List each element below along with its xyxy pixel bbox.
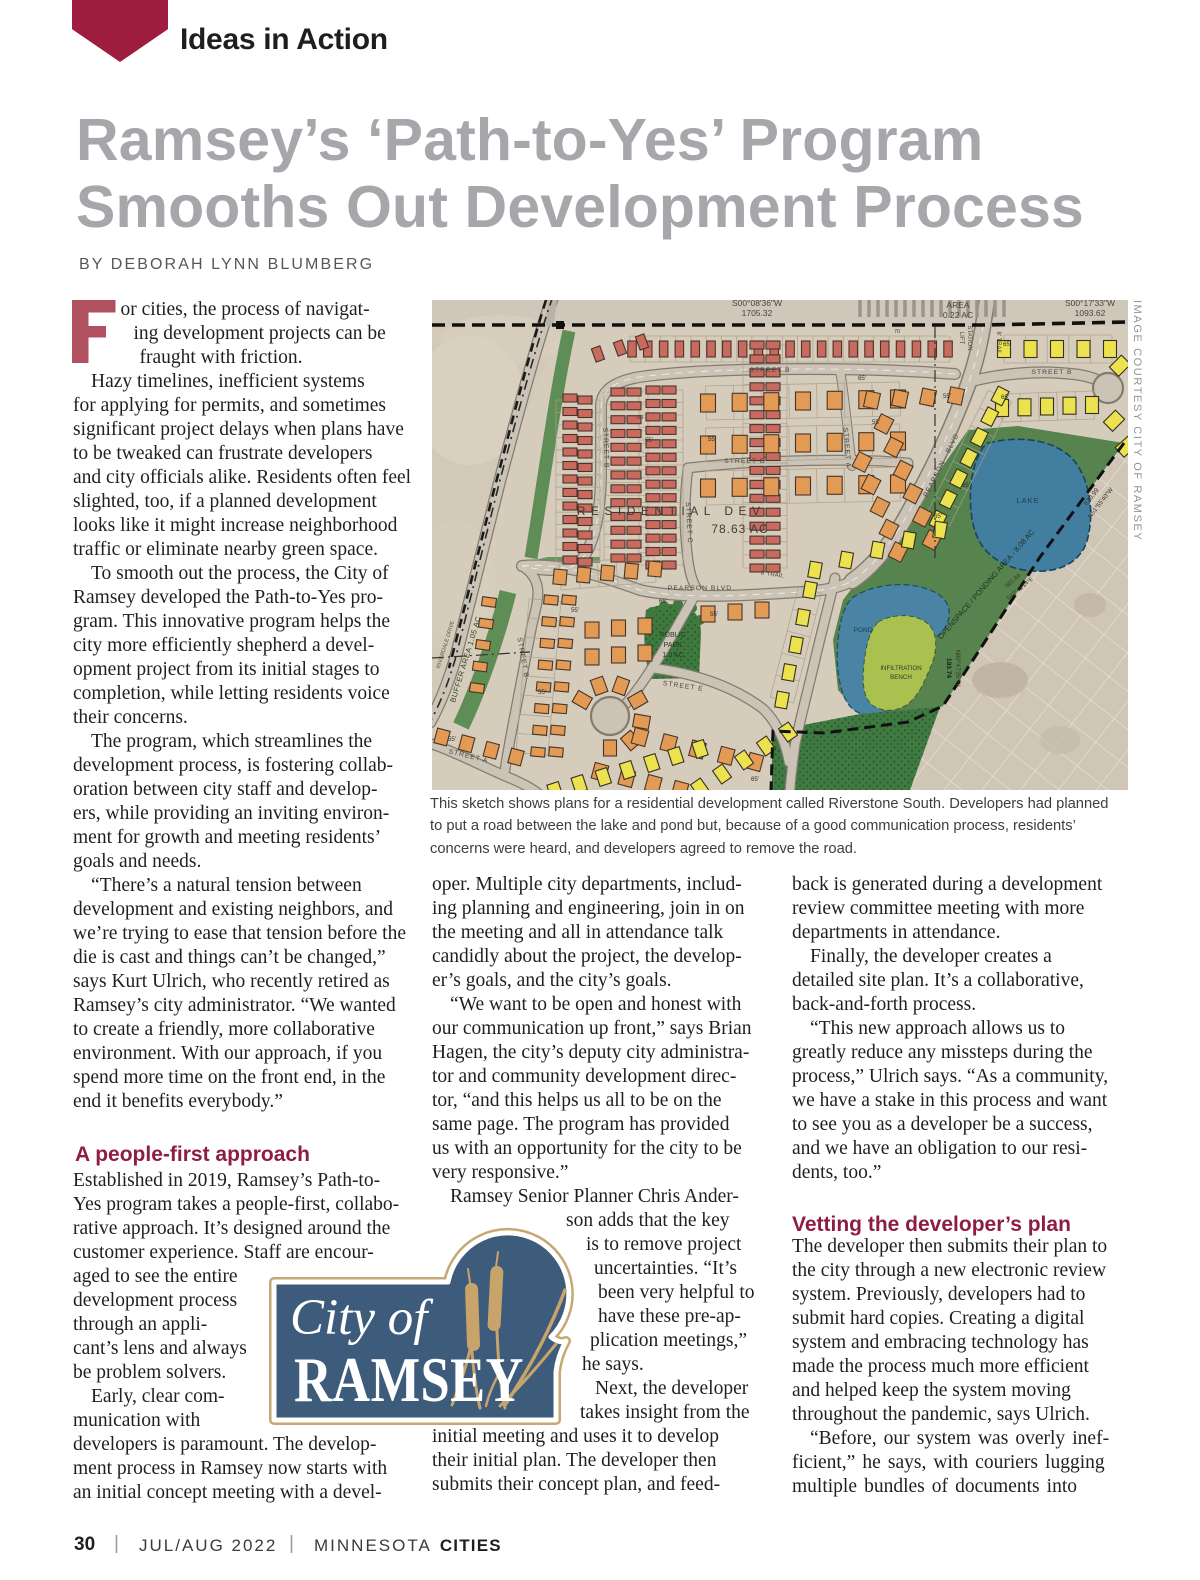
svg-text:60: 60 bbox=[637, 415, 643, 421]
svg-text:55': 55' bbox=[943, 393, 951, 400]
svg-text:S00°08'36"W: S00°08'36"W bbox=[732, 300, 782, 308]
svg-text:70: 70 bbox=[894, 329, 900, 335]
svg-text:POND: POND bbox=[854, 627, 873, 634]
svg-text:STREET D: STREET D bbox=[724, 458, 766, 465]
svg-text:AREA: AREA bbox=[946, 300, 969, 310]
svg-text:65': 65' bbox=[1003, 341, 1011, 348]
svg-text:STREET B: STREET B bbox=[749, 367, 790, 374]
svg-text:PEARSON BLVD: PEARSON BLVD bbox=[668, 585, 732, 592]
svg-text:55': 55' bbox=[645, 437, 653, 444]
svg-text:65': 65' bbox=[659, 598, 667, 605]
svg-text:INFILTRATION: INFILTRATION bbox=[880, 665, 921, 672]
svg-text:PARK: PARK bbox=[663, 640, 682, 649]
svg-text:STREET B: STREET B bbox=[601, 427, 609, 468]
svg-text:65': 65' bbox=[858, 375, 866, 382]
svg-text:RAMSEY: RAMSEY bbox=[294, 1344, 524, 1415]
svg-text:STATION: STATION bbox=[966, 325, 972, 350]
svg-text:65': 65' bbox=[751, 776, 759, 783]
svg-text:1.0 AC: 1.0 AC bbox=[662, 650, 684, 659]
svg-text:N89°47'35"W: N89°47'35"W bbox=[954, 650, 961, 687]
svg-text:78.63 AC: 78.63 AC bbox=[711, 522, 768, 536]
svg-text:193.74: 193.74 bbox=[945, 658, 952, 678]
svg-text:55': 55' bbox=[872, 419, 880, 426]
svg-text:65': 65' bbox=[1001, 394, 1009, 401]
svg-text:0.22 AC: 0.22 AC bbox=[943, 310, 973, 320]
svg-text:55': 55' bbox=[538, 689, 546, 696]
svg-text:RESIDENTIAL DEV.: RESIDENTIAL DEV. bbox=[577, 504, 773, 518]
svg-text:STREET B: STREET B bbox=[1031, 369, 1072, 376]
svg-text:City of: City of bbox=[290, 1290, 434, 1346]
svg-text:S00°17'33"W: S00°17'33"W bbox=[1065, 300, 1115, 308]
svg-text:1705.32: 1705.32 bbox=[742, 308, 773, 318]
svg-text:55': 55' bbox=[710, 611, 718, 618]
svg-text:PUBLIC: PUBLIC bbox=[660, 630, 686, 639]
svg-text:BENCH: BENCH bbox=[890, 674, 912, 681]
svg-text:LAKE: LAKE bbox=[1016, 496, 1039, 505]
svg-text:65': 65' bbox=[934, 513, 942, 520]
svg-text:55': 55' bbox=[708, 436, 716, 443]
svg-text:8' TRAIL: 8' TRAIL bbox=[995, 331, 1001, 355]
svg-text:55': 55' bbox=[448, 736, 456, 743]
svg-text:LIFT: LIFT bbox=[958, 332, 964, 345]
svg-text:55': 55' bbox=[571, 607, 579, 614]
svg-text:1093.62: 1093.62 bbox=[1075, 308, 1106, 318]
svg-text:65': 65' bbox=[962, 482, 970, 489]
